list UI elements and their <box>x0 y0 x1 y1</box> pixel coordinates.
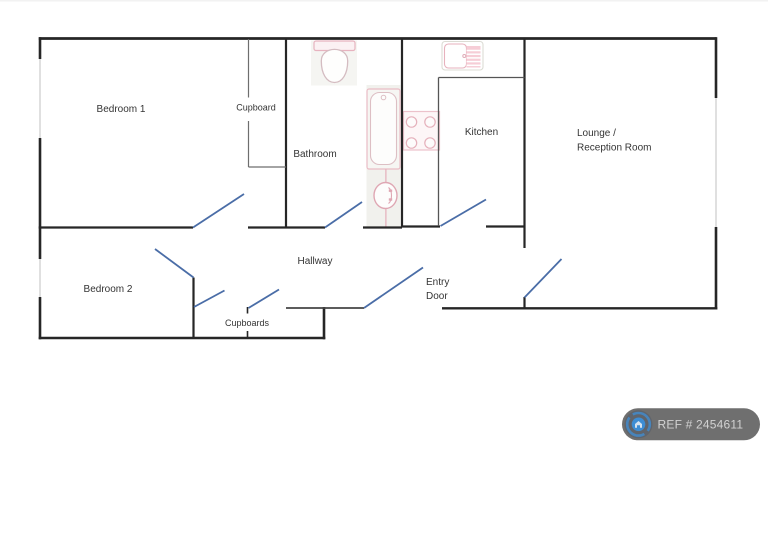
svg-text:Door: Door <box>426 291 448 302</box>
svg-text:Bathroom: Bathroom <box>293 149 336 160</box>
svg-text:Bedroom 2: Bedroom 2 <box>84 284 133 295</box>
svg-text:Hallway: Hallway <box>297 256 332 267</box>
svg-text:REF # 2454611: REF # 2454611 <box>658 418 744 432</box>
svg-text:Reception Room: Reception Room <box>577 143 651 154</box>
svg-text:Entry: Entry <box>426 277 449 288</box>
svg-text:Kitchen: Kitchen <box>465 127 498 138</box>
svg-text:Cupboard: Cupboard <box>236 103 276 113</box>
svg-text:Lounge /: Lounge / <box>577 128 616 139</box>
svg-text:Cupboards: Cupboards <box>225 318 270 328</box>
svg-text:Bedroom 1: Bedroom 1 <box>97 104 146 115</box>
